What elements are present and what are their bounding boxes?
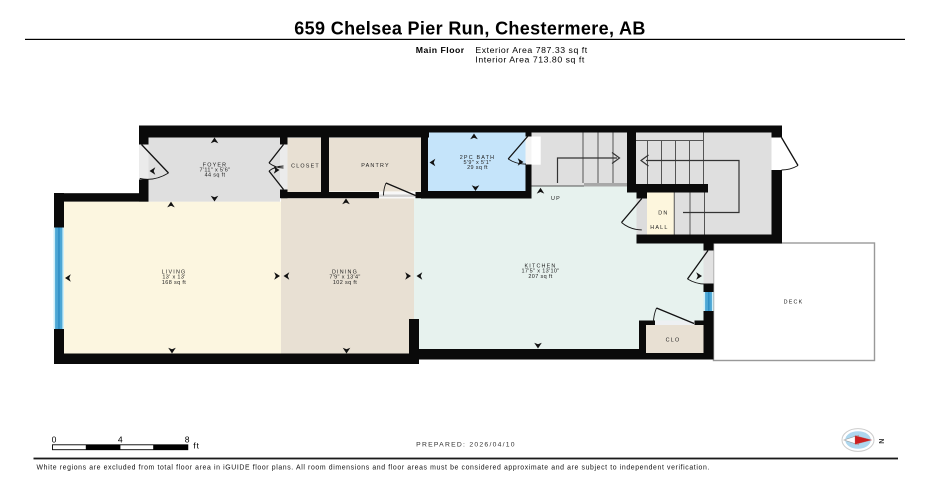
svg-text:N: N xyxy=(877,439,884,444)
svg-text:UP: UP xyxy=(551,196,561,202)
svg-text:DECK: DECK xyxy=(784,300,804,306)
svg-text:102 sq ft: 102 sq ft xyxy=(333,280,357,286)
svg-text:Main Floor: Main Floor xyxy=(416,45,465,55)
svg-text:207 sq ft: 207 sq ft xyxy=(528,274,552,280)
svg-text:659 Chelsea Pier Run, Chesterm: 659 Chelsea Pier Run, Chestermere, AB xyxy=(294,19,645,39)
svg-text:8: 8 xyxy=(185,435,190,445)
svg-text:PREPARED: 2026/04/10: PREPARED: 2026/04/10 xyxy=(416,442,516,449)
svg-text:DN: DN xyxy=(658,211,668,217)
svg-text:CLO: CLO xyxy=(666,338,681,344)
svg-text:Interior Area 713.80 sq ft: Interior Area 713.80 sq ft xyxy=(475,54,584,64)
svg-text:PANTRY: PANTRY xyxy=(361,163,390,169)
svg-text:HALL: HALL xyxy=(650,225,668,231)
svg-text:29 sq ft: 29 sq ft xyxy=(467,165,488,171)
svg-text:44 sq ft: 44 sq ft xyxy=(205,173,226,179)
svg-text:168 sq ft: 168 sq ft xyxy=(162,280,186,286)
svg-text:CLOSET: CLOSET xyxy=(291,163,320,169)
svg-text:White regions are excluded fro: White regions are excluded from total fl… xyxy=(37,464,710,471)
svg-text:4: 4 xyxy=(118,435,123,445)
svg-text:0: 0 xyxy=(52,435,57,445)
svg-text:ft: ft xyxy=(193,441,200,451)
